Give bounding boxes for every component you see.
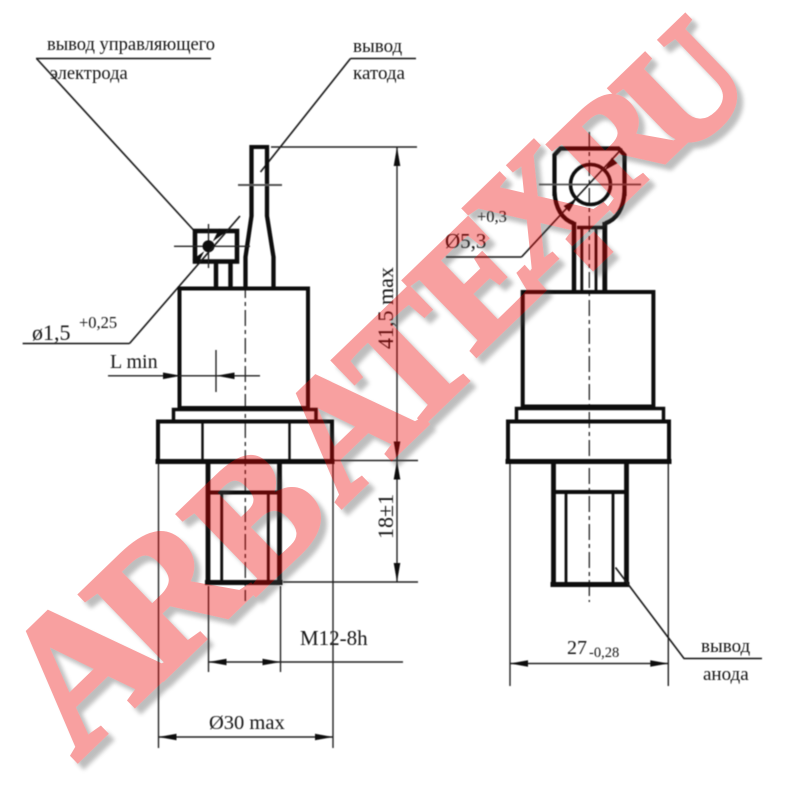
- svg-text:вывод: вывод: [353, 36, 403, 57]
- svg-text:вывод управляющего: вывод управляющего: [47, 35, 215, 55]
- svg-text:Ø30 max: Ø30 max: [209, 712, 285, 734]
- svg-text:M12-8h: M12-8h: [300, 626, 368, 650]
- svg-text:ø1,5: ø1,5: [32, 320, 71, 345]
- svg-text:катода: катода: [353, 63, 406, 84]
- svg-text:L min: L min: [110, 351, 158, 373]
- svg-text:27: 27: [567, 637, 587, 659]
- svg-text:анода: анода: [703, 664, 749, 685]
- svg-text:электрода: электрода: [50, 64, 128, 84]
- svg-text:вывод: вывод: [701, 636, 751, 657]
- svg-text:+0,25: +0,25: [79, 313, 117, 332]
- svg-text:-0,28: -0,28: [589, 645, 619, 661]
